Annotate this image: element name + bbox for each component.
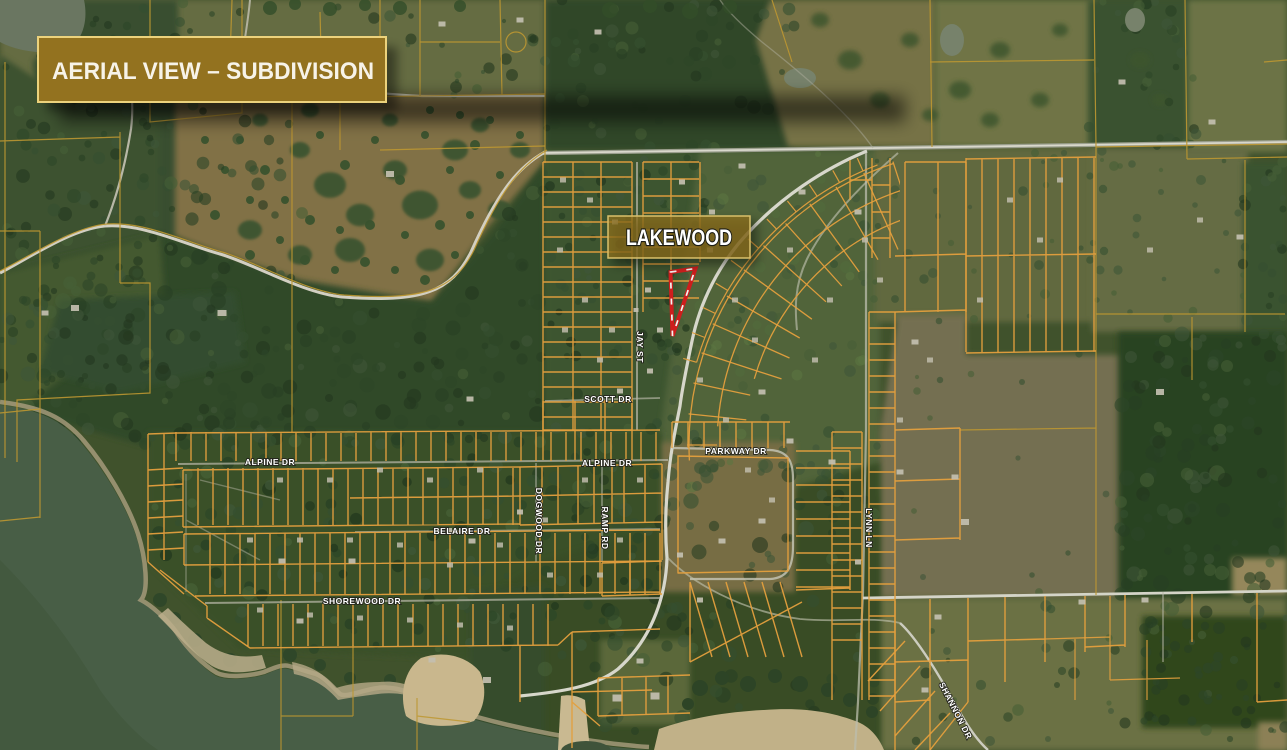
svg-text:AERIAL VIEW – SUBDIVISION: AERIAL VIEW – SUBDIVISION [52,58,374,85]
svg-text:SHOREWOOD DR: SHOREWOOD DR [323,596,401,606]
svg-text:ALPINE DR: ALPINE DR [582,458,632,468]
svg-text:JAY ST: JAY ST [635,331,645,363]
svg-text:LYNN LN: LYNN LN [864,508,874,548]
svg-text:PARKWAY DR: PARKWAY DR [705,446,767,456]
svg-text:LAKEWOOD: LAKEWOOD [626,225,732,250]
svg-text:SCOTT DR: SCOTT DR [584,394,631,404]
svg-text:BELAIRE DR: BELAIRE DR [434,526,491,536]
svg-text:RAMP RD: RAMP RD [600,506,610,549]
svg-text:DOGWOOD DR: DOGWOOD DR [534,488,544,554]
svg-text:ALPINE DR: ALPINE DR [245,457,295,467]
